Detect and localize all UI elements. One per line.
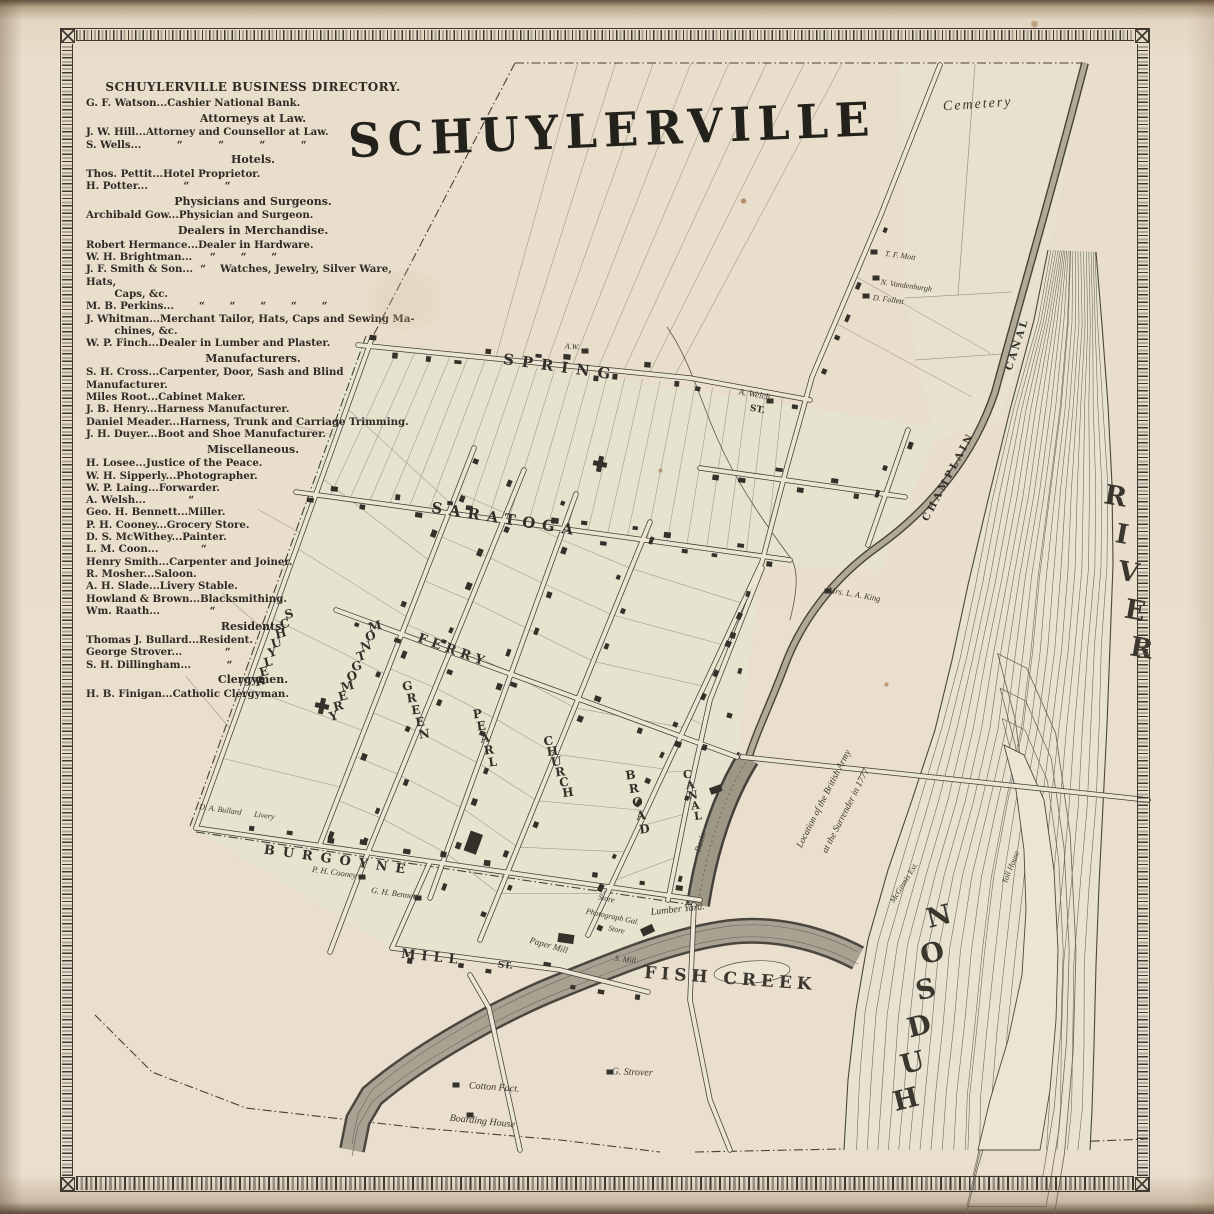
directory-section-heading: Physicians and Surgeons. [86, 195, 420, 208]
directory-entry: Wm. Raath... “ [86, 605, 420, 617]
house [674, 381, 679, 387]
label-mrs_la_king: Mrs. L. A. King [827, 584, 882, 603]
house [712, 474, 719, 480]
directory-entry: Caps, &c. [86, 288, 420, 300]
house [873, 276, 880, 281]
house [359, 875, 366, 880]
label-green: N [418, 726, 431, 741]
house [695, 386, 701, 391]
directory-entry: H. Potter... “ “ [86, 180, 420, 192]
label-river: R [1102, 479, 1130, 514]
house [797, 487, 804, 493]
directory-entry: Miles Root...Cabinet Maker. [86, 391, 420, 403]
house [485, 349, 491, 355]
house [570, 985, 576, 990]
directory-entry: L. M. Coon... “ [86, 543, 420, 555]
house [639, 881, 645, 886]
directory-entry: Thomas J. Bullard...Resident. [86, 634, 420, 646]
directory-entry: S. H. Dillingham... “ [86, 659, 420, 671]
house [581, 520, 588, 525]
directory-entry: J. W. Hill...Attorney and Counsellor at … [86, 126, 420, 138]
label-church: H [561, 785, 574, 800]
directory-entry: D. S. McWithey...Painter. [86, 531, 420, 543]
directory-entry: J. B. Henry...Harness Manufacturer. [86, 403, 420, 415]
directory-entry: chines, &c. [86, 325, 420, 337]
house [844, 314, 851, 323]
directory-entry: Robert Hermance...Dealer in Hardware. [86, 239, 420, 251]
directory-entry: P. H. Cooney...Grocery Store. [86, 519, 420, 531]
directory-entry: Thos. Pettit...Hotel Proprietor. [86, 168, 420, 180]
house [582, 349, 589, 354]
house [766, 561, 772, 567]
directory-section-heading: Miscellaneous. [86, 443, 420, 456]
house [738, 477, 746, 483]
house [831, 478, 839, 484]
house [592, 872, 598, 878]
directory-section-heading: Residents. [86, 620, 420, 633]
directory-entry: J. Whitman...Merchant Tailor, Hats, Caps… [86, 313, 420, 325]
directory-entry: S. Wells... “ “ “ “ [86, 139, 420, 151]
directory-entry: G. F. Watson...Cashier National Bank. [86, 97, 420, 109]
directory-entry: H. B. Finigan...Catholic Clergyman. [86, 688, 420, 700]
label-river: R [1128, 631, 1156, 666]
label-broad: D [638, 821, 650, 836]
directory-entry: J. F. Smith & Son... “ Watches, Jewelry,… [86, 263, 420, 288]
house [286, 830, 292, 835]
directory-entry: Howland & Brown...Blacksmithing. [86, 593, 420, 605]
business-directory: SCHUYLERVILLE BUSINESS DIRECTORY. G. F. … [86, 80, 420, 700]
house [597, 989, 604, 994]
directory-entry: J. H. Duyer...Boot and Shoe Manufacturer… [86, 428, 420, 440]
directory-entry: George Strover... “ [86, 646, 420, 658]
directory-entry: W. P. Laing...Forwarder. [86, 482, 420, 494]
label-d_follett: D. Follett [871, 293, 905, 306]
house [882, 227, 888, 233]
directory-entry: Henry Smith...Carpenter and Joiner. [86, 556, 420, 568]
house [485, 969, 491, 974]
label-river: E [1122, 594, 1148, 628]
house [853, 493, 859, 499]
house [834, 335, 841, 341]
label-river: V [1114, 555, 1142, 590]
house [403, 848, 411, 854]
directory-entry: R. Mosher...Saloon. [86, 568, 420, 580]
directory-entry: Daniel Meader...Harness, Trunk and Carri… [86, 416, 420, 428]
house [711, 553, 717, 557]
label-st_abbr: ST. [497, 960, 513, 972]
directory-entry: W. P. Finch...Dealer in Lumber and Plast… [86, 337, 420, 349]
house [855, 282, 862, 290]
house [454, 360, 462, 364]
house [863, 294, 870, 299]
house [871, 250, 878, 255]
directory-entry: A. Welsh... “ [86, 494, 420, 506]
house [483, 860, 490, 867]
directory-entry: H. Losee...Justice of the Peace. [86, 457, 420, 469]
directory-section-heading: Clergymen. [86, 673, 420, 686]
directory-entry: A. H. Slade...Livery Stable. [86, 580, 420, 592]
atlas-page: SPRINGST.SARATOGAFERRYBURGOYNEMILLST.SCH… [0, 0, 1214, 1214]
directory-entry: Archibald Gow...Physician and Surgeon. [86, 209, 420, 221]
house [821, 368, 828, 375]
house [635, 994, 641, 1000]
house [675, 885, 683, 891]
house [249, 826, 255, 832]
house [453, 1083, 460, 1088]
house [426, 356, 431, 362]
directory-section-heading: Manufacturers. [86, 352, 420, 365]
label-g_strover: G. Strover [611, 1066, 653, 1078]
directory-title: SCHUYLERVILLE BUSINESS DIRECTORY. [86, 80, 420, 94]
directory-section-heading: Hotels. [86, 153, 420, 166]
label-aw: A.W. [563, 341, 579, 351]
directory-section-heading: Attorneys at Law. [86, 112, 420, 125]
directory-entry: W. H. Brightman... “ “ “ [86, 251, 420, 263]
house [664, 532, 672, 539]
directory-entry: W. H. Sipperly...Photographer. [86, 470, 420, 482]
directory-section-heading: Dealers in Merchandise. [86, 224, 420, 237]
house [440, 851, 447, 857]
directory-body: G. F. Watson...Cashier National Bank.Att… [86, 97, 420, 700]
house [644, 362, 651, 368]
directory-entry: S. H. Cross...Carpenter, Door, Sash and … [86, 366, 420, 391]
label-boarding_house: Boarding House [449, 1113, 516, 1131]
directory-entry: Geo. H. Bennett...Miller. [86, 506, 420, 518]
label-cotton_factory: Cotton Fact. [469, 1080, 520, 1095]
directory-entry: M. B. Perkins... “ “ “ “ “ [86, 300, 420, 312]
house [682, 549, 688, 554]
house [632, 526, 638, 530]
house [600, 541, 607, 546]
label-river: I [1113, 518, 1131, 551]
